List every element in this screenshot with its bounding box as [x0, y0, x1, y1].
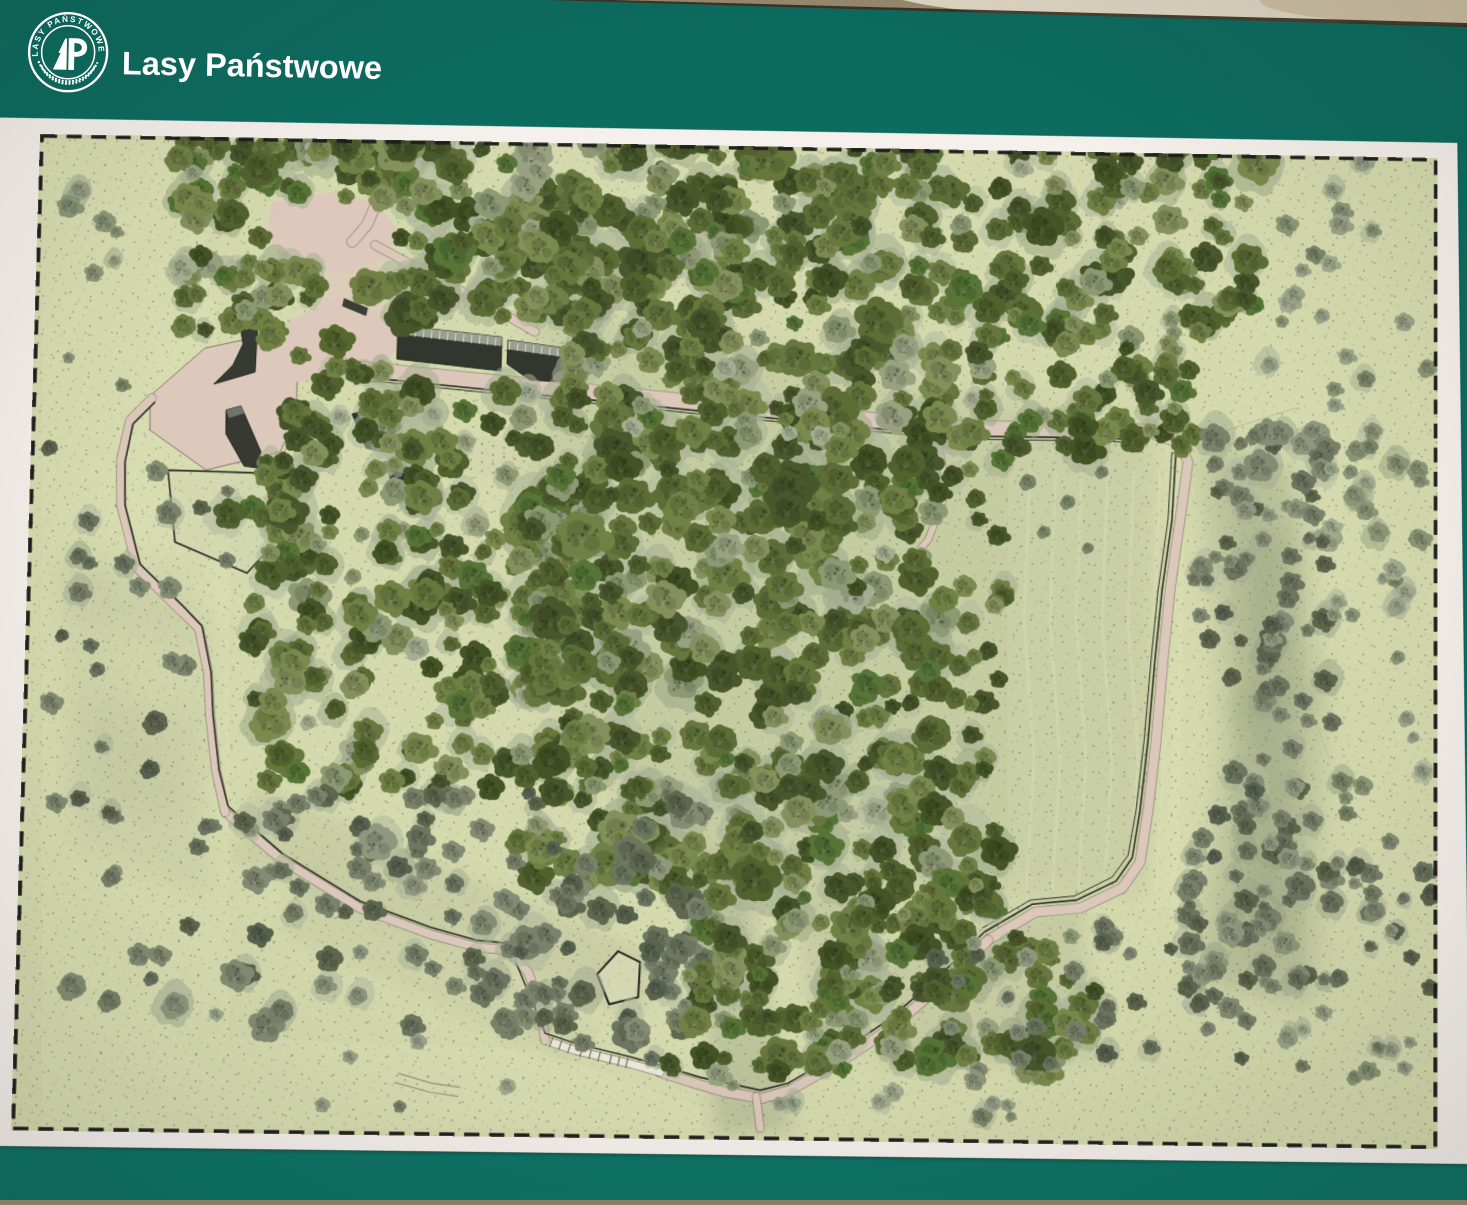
svg-text:Lasy Państwowe: Lasy Państwowe — [122, 45, 383, 86]
